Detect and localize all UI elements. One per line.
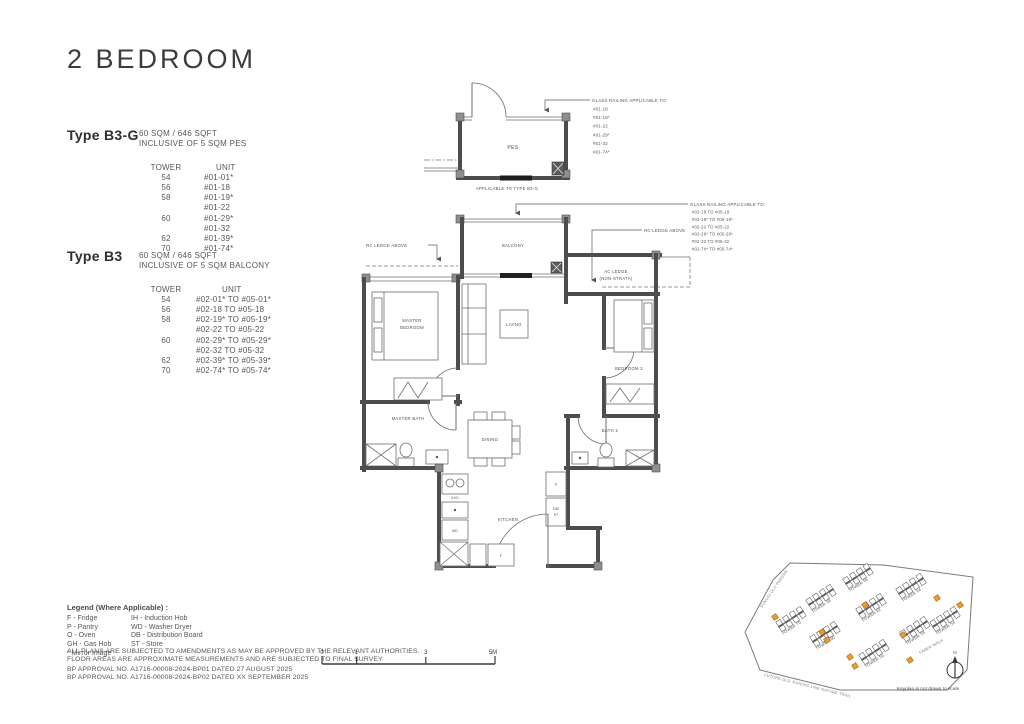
glass-railing-unit: #01-22 [593,124,608,129]
unit-cell: #02-39* TO #05-39* [194,356,328,365]
unit-table-header: TOWERUNIT [138,162,348,172]
hob-label: IH/O [451,496,459,500]
table-row: #02-22 TO #05-22 [138,325,354,335]
unit-cell: UNIT [194,285,354,294]
type-b3g-area: 60 SQM / 646 SQFT [139,129,247,139]
tower-cell: 54 [138,295,194,304]
master-wardrobe [394,378,442,400]
unit-cell: #01-39* [194,234,336,243]
unit-cell: #02-32 TO #05-32 [194,346,328,355]
keyplan-street-label: SUNGEI ULU PANDAN [760,569,789,608]
floorplan-brochure-page: 2 BEDROOM Type B3-G 60 SQM / 646 SQFT IN… [0,0,1024,724]
keyplan-street-label: FABER WALK [919,638,945,655]
master-bath-door-arc [428,402,456,430]
scale-bar: 0 1 3 5M [318,646,503,674]
table-row: #01-22 [138,203,348,213]
tower-cell: 70 [138,366,194,375]
table-row: #02-32 TO #05-32 [138,345,354,355]
keyplan-note: Keyplan is not drawn to scale [897,686,960,692]
bp-approval-text: BP APPROVAL NO. A1716-00008-2024-BP01 DA… [67,666,308,682]
legend-title: Legend (Where Applicable) : [67,603,168,612]
tower-cell: TOWER [138,285,194,294]
rc-ledge-left-label: RC LEDGE ABOVE [366,243,407,248]
table-row: 62#02-39* TO #05-39* [138,355,354,365]
db-st-box [546,498,566,526]
wd-label: WD [452,529,458,533]
unit-cell: #02-18 TO #05-18 [194,305,328,314]
sofa [462,284,486,364]
type-b3-heading: Type B3 [67,248,123,264]
legend-item: WD - Washer Dryer [131,624,203,633]
unit-cell: #01-32 [194,224,336,233]
dining-label: DINING [482,437,498,442]
glass-railing-unit: #01-29* [593,132,610,137]
pes-glass-railing-units: #01-18#01-19*#01-22#01-29*#01-32#01-74* [593,107,610,155]
master-toilet [400,443,412,457]
floorplan-drawing: PES APPLICABLE TO TYPE B3-G GLASS RAILIN… [350,80,782,592]
balcony-glass-railing-units: #02-18 TO #05-18#02-19* TO #05-19*#02-22… [692,210,733,252]
tower-cell: 58 [138,315,194,324]
scale-label-1: 1 [355,650,359,656]
bp-approval-line: BP APPROVAL NO. A1716-00008-2024-BP02 DA… [67,674,308,682]
pes-gate-door-arc [472,83,506,117]
unit-cell: #02-29* TO #05-29* [194,336,328,345]
table-row: #01-32 [138,223,348,233]
type-b3g-specs: 60 SQM / 646 SQFT INCLUSIVE OF 5 SQM PES [139,129,247,149]
unit-cell: #02-22 TO #05-22 [194,325,328,334]
bedroom2-label: BEDROOM 2 [615,366,643,371]
pes-applicable-note: APPLICABLE TO TYPE B3-G [476,186,538,191]
balcony-sliding-door [500,273,532,278]
table-row: 54#02-01* TO #05-01* [138,294,354,304]
tower-cell: 58 [138,193,194,202]
table-row: 62#01-39* [138,233,348,243]
kitchen-label: KITCHEN [498,517,518,522]
tower-cell: 56 [138,305,194,314]
scale-label-5m: 5M [489,650,497,656]
tower-cell: 54 [138,173,194,182]
unit-plan: BALCONY AC LEDGE (NON-STRATA) RC LEDGE A… [362,202,765,570]
keyplan-highlighted-unit [907,657,914,664]
tower-cell: 62 [138,234,194,243]
scale-label-3: 3 [424,650,428,656]
glass-railing-unit: #02-29* TO #05-29* [692,232,733,237]
keyplan-highlighted-unit [957,602,964,609]
pes-room-label: PES [507,145,518,151]
scale-label-0: 0 [320,650,324,656]
bedroom2-door-arc [604,348,634,378]
legend-item: IH - Induction Hob [131,615,203,624]
unit-cell: #02-01* TO #05-01* [194,295,328,304]
living-label: LIVING [506,322,522,327]
page-title: 2 BEDROOM [67,44,256,75]
unit-cell: #01-29* [194,214,336,223]
type-b3g-heading: Type B3-G [67,127,139,143]
legend-item: DB - Distribution Board [131,632,203,641]
type-b3-inclusive: INCLUSIVE OF 5 SQM BALCONY [139,261,270,271]
legend-item: O - Oven [67,632,111,641]
balcony-label: BALCONY [502,243,524,248]
unit-cell: #02-74* TO #05-74* [194,366,328,375]
pes-diagram: PES APPLICABLE TO TYPE B3-G GLASS RAILIN… [424,83,667,191]
unit-cell: #01-22 [194,203,336,212]
bath2-toilet [600,443,612,457]
unit-cell: #02-19* TO #05-19* [194,315,328,324]
tower-cell: 62 [138,356,194,365]
keyplan-highlighted-unit [934,595,941,602]
legend-item: F - Fridge [67,615,111,624]
keyplan-highlighted-unit [772,614,779,621]
tower-cell: 60 [138,336,194,345]
table-row: 58#01-19* [138,193,348,203]
table-row: 70#02-74* TO #05-74* [138,366,354,376]
balcony-glass-railing-title: GLASS RAILING APPLICABLE TO: [690,202,765,207]
glass-railing-unit: #02-22 TO #05-22 [692,224,730,229]
st-label: ST [554,513,559,517]
glass-railing-unit: #02-32 TO #05-32 [692,239,730,244]
tower-cell: 60 [138,214,194,223]
bp-approval-line: BP APPROVAL NO. A1716-00008-2024-BP01 DA… [67,666,308,674]
bedroom2-wardrobe [606,384,654,404]
north-compass: N [947,650,963,678]
tower-cell: TOWER [138,163,194,172]
db-label: DB/ [553,507,559,511]
table-row: 58#02-19* TO #05-19* [138,315,354,325]
glass-railing-unit: #02-19* TO #05-19* [692,217,733,222]
glass-railing-unit: #01-19* [593,115,610,120]
table-row: 56#02-18 TO #05-18 [138,304,354,314]
glass-railing-unit: #02-74* TO #05-74* [692,247,733,252]
master-bedroom-label-2: BEDROOM [400,325,424,330]
tower-cell: 56 [138,183,194,192]
keyplan-highlighted-unit [852,663,859,670]
table-row: 60#01-29* [138,213,348,223]
type-b3g-inclusive: INCLUSIVE OF 5 SQM PES [139,139,247,149]
type-b3-area: 60 SQM / 646 SQFT [139,251,270,261]
unit-cell: #01-18 [194,183,336,192]
master-bedroom-label-1: MASTER [402,318,421,323]
legend-item: P - Pantry [67,624,111,633]
keyplan-highlighted-unit [847,654,854,661]
unit-cell: #01-01* [194,173,336,182]
unit-cell: #01-19* [194,193,336,202]
type-b3g-unit-table: TOWERUNIT54#01-01*56#01-1858#01-19*#01-2… [138,162,348,254]
bath2-label: BATH 2 [602,428,619,433]
keyplan: TOWER 68TOWER 66TOWER 64TOWER 70TOWER 62… [738,550,990,702]
rc-ledge-right-label: RC LEDGE ABOVE [644,228,685,233]
ac-ledge-label-1: AC LEDGE [604,269,628,274]
keyplan-tower-clusters: TOWER 68TOWER 66TOWER 64TOWER 70TOWER 62… [776,563,961,669]
unit-table-header: TOWERUNIT [138,284,354,294]
pes-glass-railing-title: GLASS RAILING APPLICABLE TO: [592,98,667,103]
table-row: 60#02-29* TO #05-29* [138,335,354,345]
glass-railing-unit: #01-18 [593,107,608,112]
type-b3-specs: 60 SQM / 646 SQFT INCLUSIVE OF 5 SQM BAL… [139,251,270,271]
ac-ledge-label-2: (NON-STRATA) [600,276,633,281]
unit-cell: UNIT [194,163,348,172]
table-row: 54#01-01* [138,172,348,182]
keyplan-street-label: FUTURE OLD JURONG LINE NATURE TRAIL [764,673,852,699]
master-bath-label: MASTER BATH [392,416,425,421]
north-needle [952,656,958,663]
type-b3-unit-table: TOWERUNIT54#02-01* TO #05-01*56#02-18 TO… [138,284,354,376]
table-row: 56#01-18 [138,182,348,192]
glass-railing-unit: #01-74* [593,150,610,155]
glass-railing-unit: #02-18 TO #05-18 [692,210,730,215]
glass-railing-unit: #01-32 [593,141,608,146]
north-label: N [953,650,957,656]
legend-column-2: IH - Induction HobWD - Washer DryerDB - … [131,615,203,650]
